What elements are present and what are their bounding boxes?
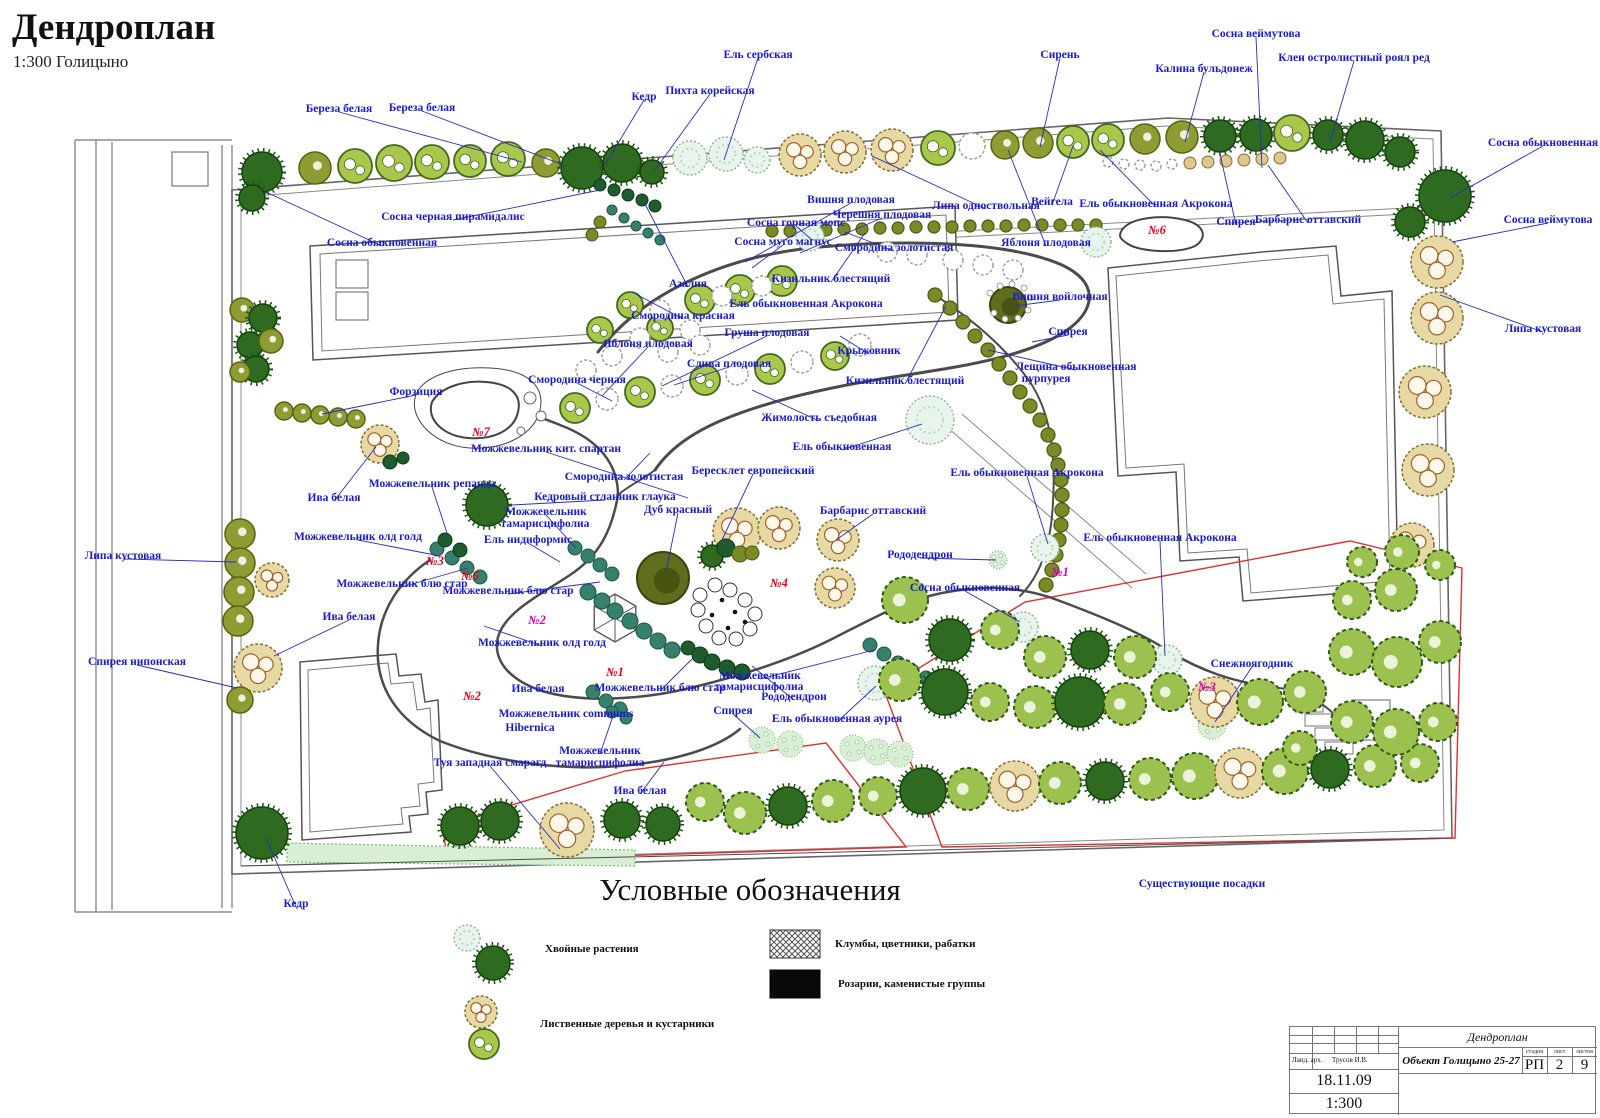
page-title: Дендроплан [12,6,215,49]
legend-hatch-swatch [770,930,820,958]
sheet-value: 2 [1547,1056,1572,1074]
hedge-shrub [874,222,886,234]
plant-label: Вейгела [1031,196,1073,208]
tree-symbol-s3 [605,567,619,581]
plant-label: Спирея нипонская [88,656,186,668]
hedge-shrub [1055,488,1069,502]
label-leader-line [274,620,349,656]
plant-label: Сирень [1040,49,1079,61]
hedge-shrub [1072,219,1084,231]
tree-symbol-w1 [661,375,683,397]
plant-label: Ива белая [323,611,376,623]
plant-label: Сосна муго магнус [734,236,831,248]
plant-label: Барбарис оттавский [1255,214,1362,226]
hedge-shrub [1055,503,1069,517]
tree-symbol-s3 [619,213,629,223]
tree-symbol-d1 [560,393,590,423]
tree-symbol-s3 [622,613,638,629]
pond-stone [517,427,525,435]
rockery-dot [720,598,725,603]
tree-symbol-d2 [299,152,331,184]
tree-symbol-s1 [383,455,397,469]
tree-symbol-c1 [602,800,642,840]
plant-label: Ель обыкновенная Акрокона [1079,198,1233,210]
hedge-shrub [1023,399,1037,413]
tree-symbol-c1 [601,142,643,184]
tree-symbol-w1 [1119,159,1129,169]
tree-symbol-c1 [927,617,973,663]
rockery-dot [726,626,731,631]
tree-symbol-d1 [625,377,655,407]
tree-symbol-c1 [1053,675,1107,729]
tree-symbol-s3 [636,623,652,639]
tree-symbol-m1 [1329,629,1375,675]
plant-label: Кизильник блестящий [772,273,891,285]
tree-symbol-w1 [1167,159,1177,169]
plant-label: Слива плодовая [687,358,771,370]
hedge-shrub [1033,413,1047,427]
plant-label: Ель нидиформис [484,534,572,546]
tree-symbol-w1 [959,133,985,159]
rockery-dot [743,620,748,625]
plant-label: Кедр [283,898,308,910]
hedge-shrub [892,222,904,234]
tree-symbol-s3 [580,584,596,600]
plant-label: Кедровый стланник глаука [534,491,676,503]
tree-symbol-m1 [859,777,897,815]
tree-symbol-w1 [1135,160,1145,170]
rockery-stone [691,603,705,617]
tree-symbol-t1 [779,134,821,176]
stage-label: стадия [1522,1048,1547,1056]
tree-symbol-g2 [749,727,775,753]
tree-symbol-w1 [973,255,993,275]
tree-symbol-m1 [947,768,989,810]
tree-symbol-d2 [1023,128,1053,158]
plant-label: Сосна горная мопс [747,217,845,229]
plant-label: Можжевельник кит. спартан [471,443,621,455]
plant-label: Смородина золотистая [565,471,684,483]
hedge-shrub [928,221,940,233]
tree-symbol-m1 [1425,550,1455,580]
tree-symbol-w1 [1151,161,1161,171]
tree-symbol-d2 [532,149,560,177]
plant-label: Береза белая [389,102,456,114]
sheets-label: листов [1572,1048,1597,1056]
plant-label: Рододендрон [761,691,827,703]
plant-label: Можжевельник блю стар [442,585,573,597]
tree-symbol-m1 [981,611,1019,649]
tree-symbol-m1 [1375,569,1417,611]
area-number-marker: №1 [1051,565,1069,579]
tree-symbol-t1 [817,519,859,561]
hedge-shrub [1054,219,1066,231]
plant-label: Дуб красный [644,504,713,516]
tree-symbol-s3 [581,549,595,563]
plant-label: Смородина черная [528,374,626,386]
tree-symbol-s3 [607,603,623,619]
tree-symbol-m1 [1373,709,1419,755]
plant-label: Рододендрон [887,549,953,561]
tree-symbol-c1 [1084,760,1126,802]
hedge-shrub [1003,371,1017,385]
legend-item-label: Лиственные деревья и кустарники [540,1018,715,1030]
plant-label: Можжевельник олд голд [478,637,606,649]
flower-dot [1025,307,1031,313]
plant-label: Ель обыкновенная Акрокона [1083,532,1237,544]
tree-symbol-t1 [758,507,800,549]
tree-symbol-c2 [454,925,480,951]
tree-symbol-c1 [1202,118,1238,154]
plant-label: Форзиция [390,386,443,398]
legend-title: Условные обозначения [450,872,1050,908]
plant-label: Азалия [669,278,707,290]
tree-symbol-d2 [1166,121,1198,153]
tree-symbol-d1 [1274,115,1310,151]
legend-item-label: Хвойные растения [545,943,639,955]
tree-symbol-c1 [767,785,809,827]
plant-label: Липа кустовая [1505,323,1582,335]
tree-symbol-m1 [1347,547,1377,577]
tree-symbol-s4 [1274,152,1286,164]
tree-symbol-m1 [686,783,724,821]
hedge-shrub [946,221,958,233]
tree-symbol-t1 [1402,444,1454,496]
tree-symbol-c1 [898,766,948,816]
hedge-shrub [968,329,982,343]
tree-symbol-d2 [1130,124,1160,154]
tree-symbol-s3 [593,558,607,572]
pond-stone [536,411,546,421]
tree-symbol-d2 [347,410,365,428]
plant-label: пурпурея [1022,373,1071,385]
tree-symbol-s3 [650,633,666,649]
hedge-shrub [982,220,994,232]
tree-symbol-c2 [1031,534,1059,562]
plant-label: Можжевельник communis [499,708,634,720]
tree-symbol-t1 [871,129,913,171]
plant-label: Туя западная смарагд [434,757,547,769]
tree-symbol-c1 [439,805,481,847]
tree-symbol-t1 [1215,748,1265,798]
tree-symbol-m1 [1333,581,1371,619]
tree-symbol-c1 [234,805,290,861]
hedge-shrub [956,315,970,329]
tree-symbol-d2 [224,577,254,607]
tree-symbol-d1 [491,142,525,176]
tree-symbol-w1 [690,335,710,355]
tree-symbol-d2 [223,606,253,636]
role-label: Ланд. арх. [1292,1056,1330,1064]
legend-item-label: Клумбы, цветники, рабатки [835,938,976,950]
tree-symbol-s2 [586,229,598,241]
title-block-object: Объект Голицыно 25-27 [1402,1049,1520,1073]
tree-symbol-s1 [397,452,409,464]
flower-dot [997,283,1003,289]
road-structure [172,152,208,186]
title-block-line [1290,1043,1398,1044]
area-number-marker: №5 [461,569,479,583]
title-block-line [1334,1027,1335,1053]
rockery-stone [723,583,737,597]
plant-label: Крыжовник [837,345,901,357]
page-scale-subtitle: 1:300 Голицыно [13,52,128,72]
plant-label: Липа одноствольная [932,200,1040,212]
label-leader-line [432,487,448,536]
title-block-line [1356,1027,1357,1053]
building-outline [1108,246,1398,601]
title-block-line [1290,1053,1398,1054]
plant-label: Можжевельник блю стар [594,682,725,694]
tree-symbol-c1 [644,805,682,843]
tree-symbol-d1 [454,145,486,177]
tree-symbol-m1 [1151,673,1189,711]
tree-symbol-d2 [311,406,329,424]
tree-symbol-s3 [664,642,680,658]
plant-label: Ель обыкновенная аурея [772,713,902,725]
hedge-shrub [910,221,922,233]
label-leader-line [1160,541,1165,656]
tree-symbol-w1 [1003,260,1023,280]
plant-label: Снежноягодник [1211,658,1294,670]
hedge-shrub [964,220,976,232]
hedge-shrub [928,288,942,302]
tree-symbol-c1 [474,944,512,982]
plant-label: Существующие посадки [1139,878,1266,890]
tree-symbol-c2 [906,396,954,444]
tree-symbol-c1 [479,800,521,842]
plant-label: Ива белая [614,785,667,797]
hedge-shrub [1047,443,1061,457]
plant-label: Клен остролистный роял ред [1278,52,1430,64]
flower-dot [987,290,993,296]
tree-symbol-d1 [338,149,372,183]
area-number-marker: №3 [1198,680,1216,694]
plant-label: Калина бульдонеж [1155,63,1253,75]
tree-symbol-c1 [1344,119,1386,161]
scale-value: 1:300 [1290,1093,1398,1115]
rockery-dot [733,610,738,615]
hedge-shrub [1000,220,1012,232]
plant-label: тамарисцифолиа [556,757,645,769]
flower-dot [1009,281,1015,287]
area-number-marker: №6 [1148,223,1166,237]
title-block-doc-title: Дендроплан [1398,1027,1597,1047]
dendroplan-page: { "header": {"title": "Дендроплан", "sub… [0,0,1600,1118]
tree-symbol-d1 [415,145,449,179]
tree-symbol-d2 [225,519,255,549]
tree-symbol-s3 [594,593,610,609]
tree-symbol-t1 [234,644,282,692]
tree-symbol-m1 [724,792,766,834]
rockery-stone [738,593,752,607]
plant-label: Груша плодовая [725,327,810,339]
area-number-marker: №1 [606,665,624,679]
plant-label: Ива белая [308,492,361,504]
title-block-line [1290,1035,1398,1036]
rockery-stone [729,632,743,646]
sheets-value: 9 [1572,1056,1597,1074]
tree-symbol-c1 [1311,118,1345,152]
rockery-stone [748,607,762,621]
tree-symbol-s1 [622,189,634,201]
plant-label: Hibernica [505,722,554,734]
plant-label: Вишня плодовая [807,194,895,206]
plant-label: Можжевельник [505,506,587,518]
plant-label: Сосна обыкновенная [1488,137,1598,149]
date-value: 18.11.09 [1290,1069,1398,1093]
plant-label: Можжевельник [559,745,641,757]
tree-symbol-d1 [1057,126,1089,158]
plant-label: Сосна веймутова [1504,214,1593,226]
tree-symbol-d2 [991,131,1019,159]
tree-symbol-c1 [1069,629,1111,671]
plant-label: Сосна обыкновенная [327,237,437,249]
area-number-marker: №2 [528,613,546,627]
tree-symbol-m1 [1283,731,1317,765]
tree-symbol-t1 [540,803,594,857]
legend-solid-swatch [770,970,820,998]
tree-symbol-s4 [1238,154,1250,166]
plant-label: Ель обыкновенная Акрокона [729,298,883,310]
structure-rect [336,292,368,320]
flower-dot [991,310,997,316]
tree-symbol-s1 [649,200,661,212]
plant-label: Сосна веймутова [1212,28,1301,40]
tree-symbol-d2 [293,404,311,422]
tree-symbol-m1 [1372,637,1422,687]
plant-label: Ель сербская [723,49,792,61]
title-block: Дендроплан Объект Голицыно 25-27 стадия … [1289,1026,1596,1114]
plan-canvas: Береза белаяБереза белаяКедрПихта корейс… [0,0,1600,1118]
hedge-shrub [1039,578,1053,592]
plant-label: Вишня войлочная [1012,291,1107,303]
tree-symbol-m1 [1104,683,1146,725]
tree-symbol-d2 [225,548,255,578]
plant-label: Можжевельник репанда [369,478,496,490]
plant-label: Смородина золотистая [835,242,954,254]
tree-symbol-s1 [453,543,467,557]
tree-symbol-t1 [1411,236,1463,288]
plant-label: Пихта корейская [665,85,754,97]
sheet-label: лист [1547,1048,1572,1056]
tree-symbol-s1 [608,184,620,196]
tree-symbol-g2 [840,735,866,761]
tree-symbol-c2 [673,141,707,175]
tree-symbol-d2 [230,362,250,382]
rockery-dot [710,613,715,618]
label-leader-line [733,714,760,738]
structure-rect [336,260,368,288]
tree-symbol-s4 [1184,157,1196,169]
stage-value: РП [1522,1056,1547,1074]
plant-label: Спирея [713,705,752,717]
plant-label: Сосна черная пирамидалис [381,211,525,223]
tree-symbol-m1 [1014,686,1056,728]
tree-symbol-m1 [971,683,1009,721]
hedge-shrub [1013,385,1027,399]
plant-label: Бересклет европейский [692,465,815,477]
plant-label: Можжевельник олд голд [294,531,422,543]
plant-label: Лещина обыкновенная [1016,361,1137,373]
rockery-stone [708,578,722,592]
tree-symbol-b1 [637,552,689,604]
tree-symbol-m1 [1385,535,1419,569]
flower-dot [1002,316,1008,322]
plant-label: тамарисцифолиа [501,518,590,530]
rockery-stone [712,631,726,645]
plant-label: Яблоня плодовая [1001,237,1091,249]
tree-symbol-c1 [638,158,666,186]
tree-symbol-s1 [438,533,452,547]
plant-label: Спирея [1216,216,1255,228]
plant-label: Ива белая [512,683,565,695]
tree-symbol-m1 [1284,671,1326,713]
tree-symbol-s3 [643,228,653,238]
tree-symbol-m1 [1331,701,1373,743]
tree-symbol-s3 [607,205,617,215]
tree-symbol-c1 [1383,135,1417,169]
area-number-marker: №3 [426,554,444,568]
tree-symbol-d1 [469,1029,499,1059]
plant-label: Жимолость съедобная [761,412,877,424]
hedge-shrub [992,357,1006,371]
tree-symbol-m1 [812,780,854,822]
pond-stone [524,392,536,404]
tree-symbol-t1 [255,563,289,597]
tree-symbol-w1 [791,351,813,373]
plant-label: Барбарис оттавский [820,505,927,517]
plant-label: Яблоня плодовая [603,338,693,350]
tree-symbol-s2 [594,216,606,228]
garden-steps [1305,714,1333,726]
rockery-stone [699,619,713,633]
tree-symbol-m1 [1114,636,1156,678]
building-outline [300,654,442,840]
tree-symbol-g2 [887,741,913,767]
tree-symbol-t1 [824,131,866,173]
plant-label: Черешня плодовая [833,209,931,221]
plant-label: Кизильник блестящий [846,375,965,387]
tree-symbol-s2 [745,546,759,560]
tree-symbol-m1 [1039,762,1081,804]
tree-symbol-s1 [704,654,720,670]
tree-symbol-d2 [259,329,283,353]
plant-label: Ель обыкновенная [793,441,892,453]
rockery-stone [693,588,707,602]
tree-symbol-d1 [921,131,955,165]
area-number-marker: №2 [463,689,481,703]
tree-symbol-s3 [631,221,641,231]
tree-symbol-m1 [1129,758,1171,800]
tree-symbol-d1 [376,145,412,181]
tree-symbol-t1 [465,996,497,1028]
flower-dot [1015,315,1021,321]
title-block-line [1378,1027,1379,1053]
tree-symbol-m1 [1024,636,1066,678]
tree-symbol-g2 [864,739,890,765]
label-leader-line [1450,146,1543,198]
plant-label: Сосна обыкновенная [910,582,1020,594]
hedge-shrub [1054,518,1068,532]
tree-symbol-m1 [879,659,921,701]
tree-symbol-s1 [636,194,648,206]
tree-symbol-w1 [752,276,772,296]
plant-label: Спирея [1048,326,1087,338]
tree-symbol-s3 [877,647,891,661]
tree-symbol-d2 [227,687,253,713]
plant-label: Береза белая [306,103,373,115]
